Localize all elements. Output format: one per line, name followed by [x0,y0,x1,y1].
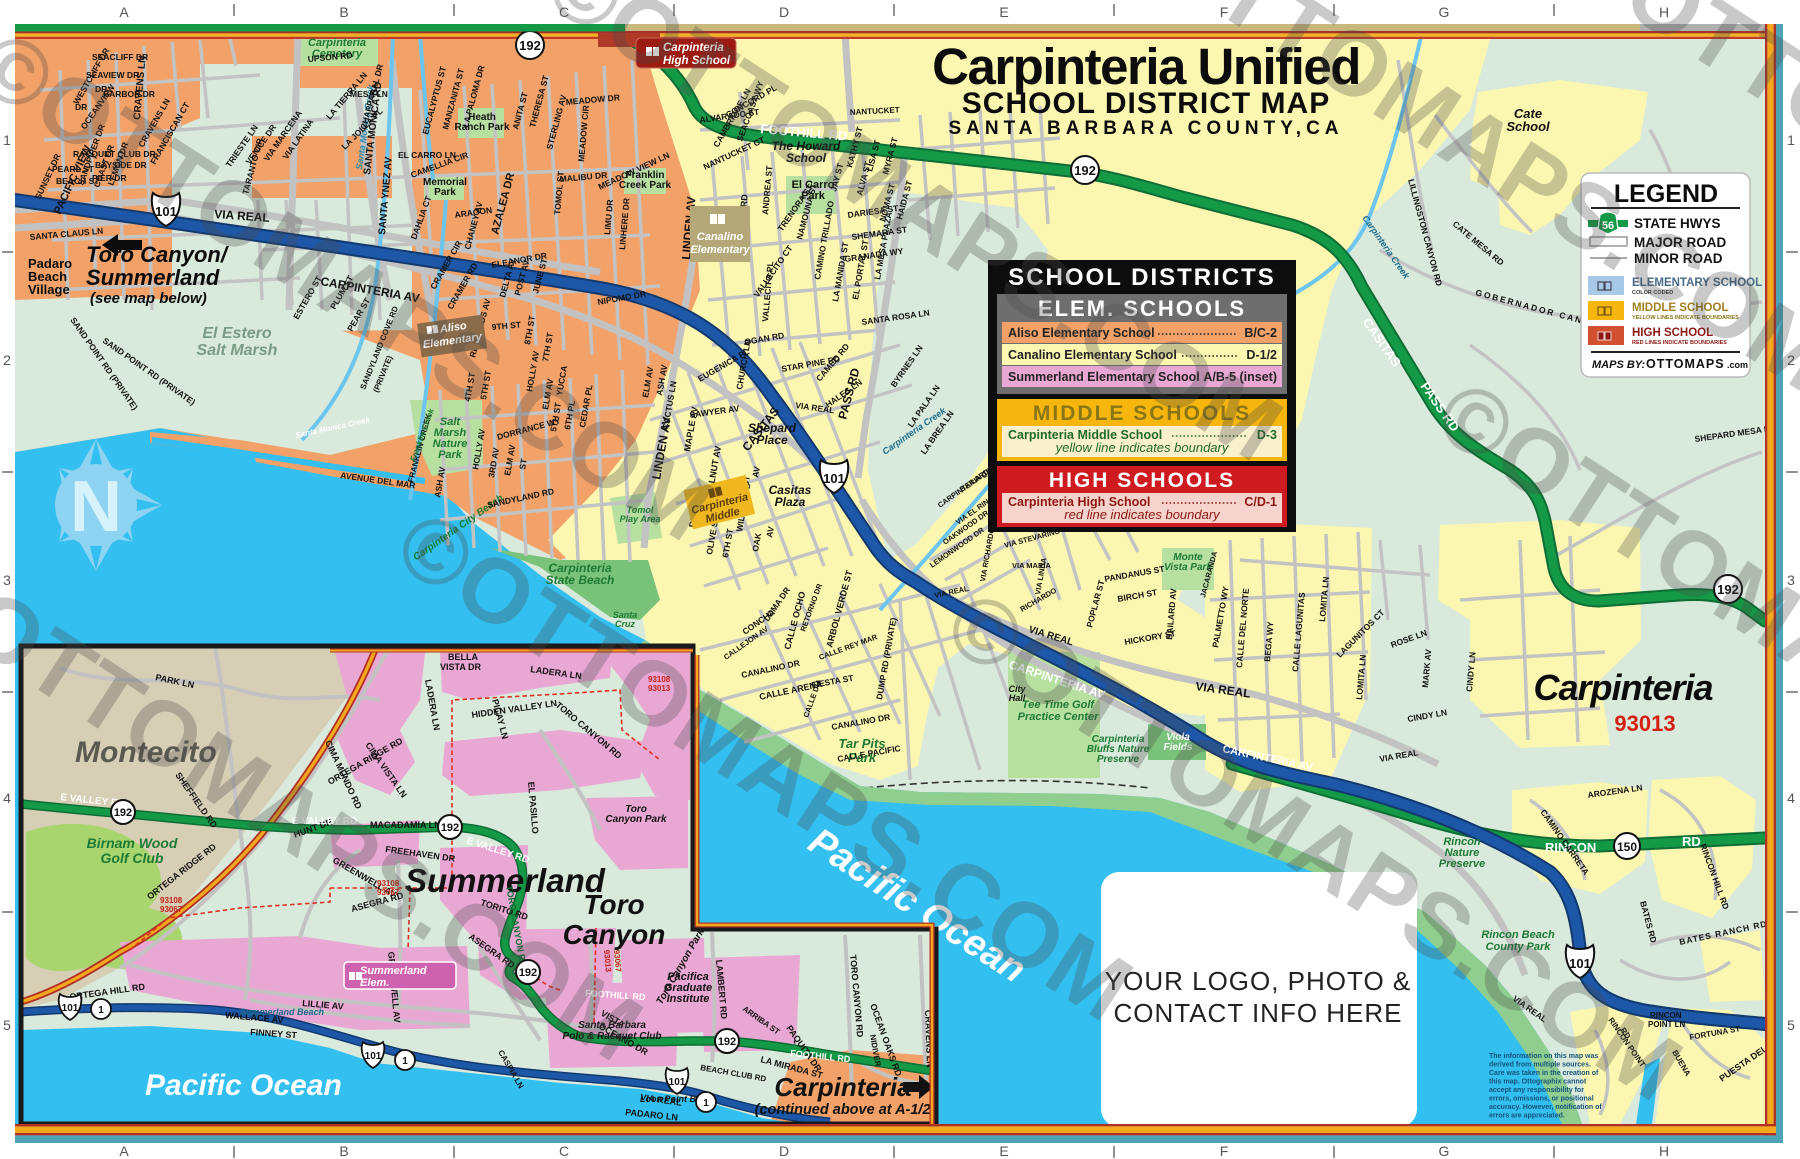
svg-text:Birnam Wood: Birnam Wood [87,835,178,851]
svg-text:Salt Marsh: Salt Marsh [197,342,278,359]
svg-text:B: B [339,4,348,20]
svg-text:5: 5 [3,1017,11,1033]
svg-text:93067: 93067 [160,905,183,914]
svg-text:VISTA DR: VISTA DR [440,662,482,672]
svg-text:Summerland Beach: Summerland Beach [240,1007,325,1017]
svg-text:H: H [1659,1143,1669,1159]
svg-text:1: 1 [98,1005,104,1016]
svg-text:Creek Park: Creek Park [619,180,672,191]
svg-text:OTTOMAPS: OTTOMAPS [1646,357,1725,371]
svg-text:Pacific Ocean: Pacific Ocean [145,1069,342,1102]
svg-text:D: D [779,4,789,20]
svg-text:5: 5 [1787,1017,1795,1033]
svg-text:150: 150 [1617,840,1637,854]
svg-text:Carpinteria: Carpinteria [1533,667,1712,708]
svg-text:errors, omissions, or position: errors, omissions, or positional [1489,1096,1594,1103]
svg-text:MAPS BY:: MAPS BY: [1592,359,1646,371]
svg-text:93013: 93013 [1614,711,1675,736]
svg-text:Canalino: Canalino [697,231,744,243]
svg-text:AV: AV [764,525,776,538]
svg-text:Village: Village [28,282,70,297]
svg-text:93108: 93108 [160,896,183,905]
svg-text:C: C [559,1143,569,1159]
svg-text:F: F [1220,1143,1229,1159]
svg-text:Elem.: Elem. [360,977,389,989]
svg-text:D-1/2: D-1/2 [1246,348,1277,362]
svg-text:(continued above at A-1/2): (continued above at A-1/2) [755,1102,936,1118]
svg-text:2: 2 [3,352,11,368]
svg-text:A: A [119,4,129,20]
svg-text:SCHOOL DISTRICT MAP: SCHOOL DISTRICT MAP [962,87,1330,120]
svg-text:101: 101 [669,1077,686,1088]
svg-text:1: 1 [703,1098,709,1109]
svg-text:101: 101 [62,1003,79,1014]
svg-text:RD: RD [1682,834,1701,849]
svg-text:Preserve: Preserve [1439,858,1486,870]
svg-text:(see map below): (see map below) [90,290,207,307]
svg-text:101: 101 [365,1051,382,1062]
svg-text:errors are appreciated.: errors are appreciated. [1489,1113,1565,1120]
svg-text:Carpinteria: Carpinteria [774,1072,911,1102]
svg-text:B: B [339,1143,348,1159]
svg-text:4: 4 [1787,790,1795,806]
svg-text:192: 192 [519,38,541,53]
svg-text:Golf Club: Golf Club [101,850,164,866]
svg-text:red line indicates boundary: red line indicates boundary [1064,507,1221,522]
svg-text:AV: AV [750,465,762,478]
svg-text:Elementary: Elementary [690,244,750,256]
svg-text:accuracy. However, notificatio: accuracy. However, notification of [1489,1104,1602,1111]
svg-text:El Estero: El Estero [202,325,272,342]
svg-text:Park: Park [438,449,463,461]
svg-text:Canyon Park: Canyon Park [605,814,667,825]
svg-text:E: E [999,4,1008,20]
svg-text:Plaza: Plaza [775,495,806,509]
svg-text:SANTA BARBARA COUNTY,CA: SANTA BARBARA COUNTY,CA [948,118,1343,139]
svg-text:A: A [119,1143,129,1159]
svg-text:Park: Park [434,187,456,198]
svg-text:4: 4 [3,790,11,806]
svg-text:192: 192 [114,807,132,819]
svg-text:G: G [1439,1143,1450,1159]
svg-text:Toro: Toro [583,889,644,920]
svg-text:BELLA: BELLA [448,652,478,662]
svg-text:192: 192 [441,822,459,834]
svg-text:accept any responsibility for: accept any responsibility for [1489,1087,1584,1094]
svg-text:B/C-2: B/C-2 [1244,326,1277,340]
svg-text:CONTACT INFO HERE: CONTACT INFO HERE [1113,998,1402,1028]
svg-text:this map. Ottographix cannot: this map. Ottographix cannot [1489,1079,1587,1086]
svg-text:D: D [779,1143,789,1159]
svg-text:192: 192 [718,1036,736,1048]
svg-text:1: 1 [402,1056,408,1067]
svg-text:192: 192 [1074,163,1096,178]
svg-text:E: E [999,1143,1008,1159]
svg-text:Summerland: Summerland [360,965,427,977]
svg-text:101: 101 [823,471,845,486]
svg-text:Institute: Institute [667,993,710,1005]
svg-text:HIGH SCHOOLS: HIGH SCHOOLS [1049,469,1235,492]
svg-text:Summerland: Summerland [86,265,220,290]
svg-text:N: N [70,467,122,547]
svg-text:1: 1 [3,132,11,148]
svg-text:G: G [1439,4,1450,20]
svg-text:C/D-1: C/D-1 [1244,495,1277,509]
svg-text:YOUR LOGO, PHOTO &: YOUR LOGO, PHOTO & [1105,966,1411,996]
